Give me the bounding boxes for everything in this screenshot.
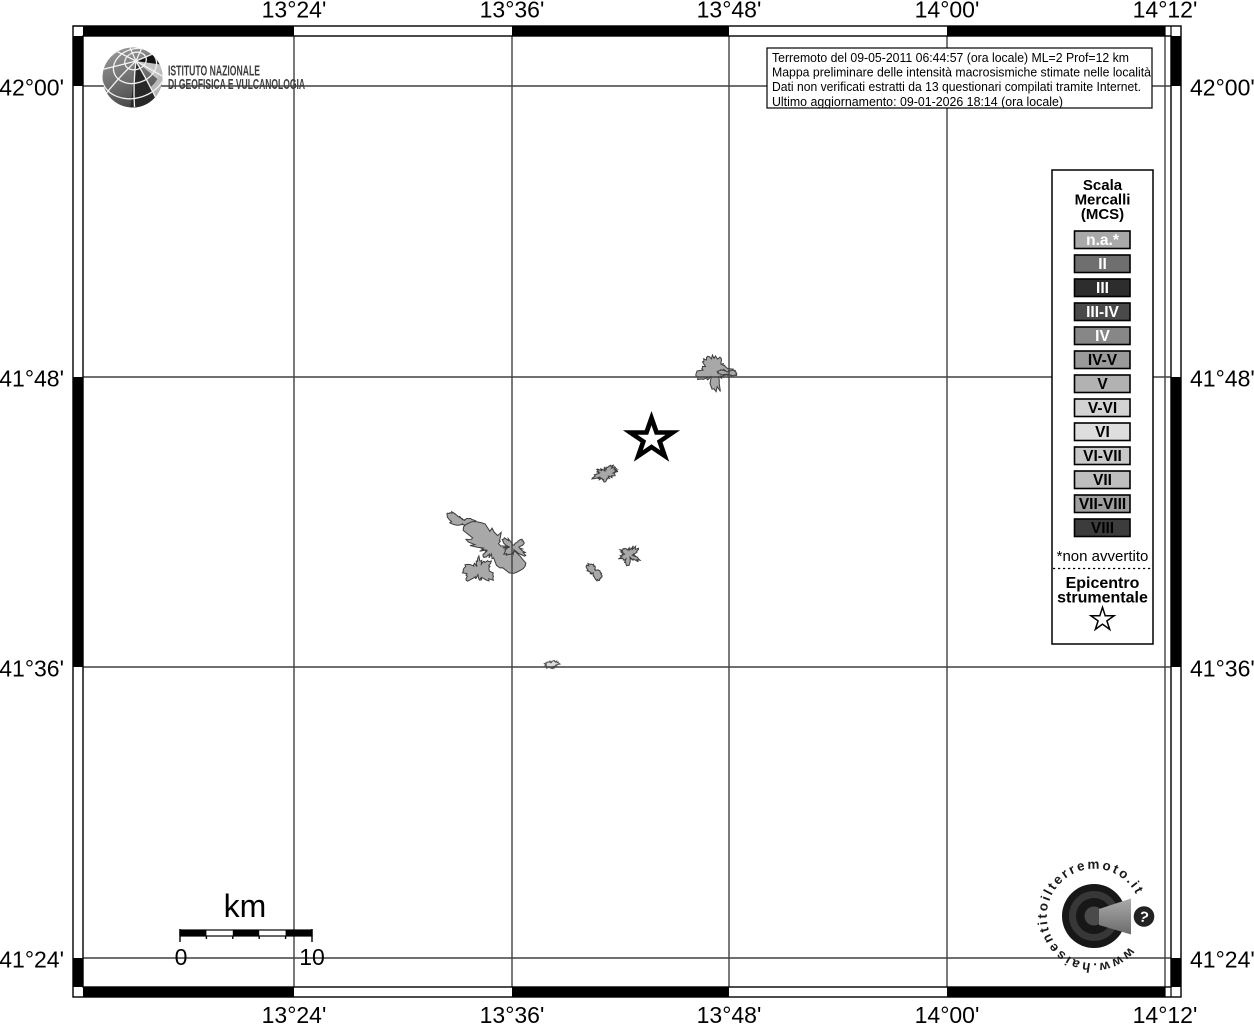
svg-text:IV-V: IV-V (1088, 352, 1118, 369)
svg-text:14°12': 14°12' (1133, 0, 1198, 23)
svg-text:0: 0 (175, 944, 188, 970)
svg-text:14°12': 14°12' (1133, 1002, 1198, 1024)
svg-text:strumentale: strumentale (1057, 590, 1148, 607)
svg-text:41°24': 41°24' (1190, 947, 1254, 973)
svg-text:km: km (224, 888, 267, 924)
svg-text:n.a.*: n.a.* (1086, 232, 1120, 249)
svg-text:41°36': 41°36' (0, 656, 64, 682)
svg-text:13°24': 13°24' (262, 0, 327, 23)
svg-text:10: 10 (299, 944, 325, 970)
svg-text:*non avvertito: *non avvertito (1057, 548, 1149, 565)
svg-text:V-VI: V-VI (1088, 400, 1117, 417)
svg-text:III: III (1096, 280, 1109, 297)
svg-text:13°36': 13°36' (480, 0, 545, 23)
svg-text:III-IV: III-IV (1086, 304, 1119, 321)
svg-text:13°48': 13°48' (697, 1002, 762, 1024)
svg-text:Mappa preliminare delle intens: Mappa preliminare delle intensità macros… (772, 65, 1152, 80)
svg-text:II: II (1098, 256, 1107, 273)
svg-text:41°48': 41°48' (1190, 366, 1254, 392)
svg-text:41°48': 41°48' (0, 366, 64, 392)
svg-text:14°00': 14°00' (915, 0, 980, 23)
svg-text:41°36': 41°36' (1190, 656, 1254, 682)
svg-text:VI: VI (1095, 424, 1110, 441)
svg-text:V: V (1097, 376, 1108, 393)
svg-text:13°24': 13°24' (262, 1002, 327, 1024)
svg-text:13°36': 13°36' (480, 1002, 545, 1024)
svg-text:42°00': 42°00' (1190, 75, 1254, 101)
svg-text:DI GEOFISICA E VULCANOLOGIA: DI GEOFISICA E VULCANOLOGIA (168, 77, 305, 93)
svg-text:IV: IV (1095, 328, 1110, 345)
svg-text:14°00': 14°00' (915, 1002, 980, 1024)
svg-text:Ultimo aggiornamento: 09-01-20: Ultimo aggiornamento: 09-01-2026 18:14 (… (772, 94, 1063, 109)
svg-text:(MCS): (MCS) (1081, 206, 1124, 223)
svg-text:Dati non verificati estratti d: Dati non verificati estratti da 13 quest… (772, 79, 1141, 94)
svg-text:Terremoto del 09-05-2011 06:44: Terremoto del 09-05-2011 06:44:57 (ora l… (772, 50, 1129, 65)
svg-text:VIII: VIII (1091, 520, 1114, 537)
svg-text:VII: VII (1093, 472, 1112, 489)
svg-text:VI-VII: VI-VII (1083, 448, 1122, 465)
svg-text:41°24': 41°24' (0, 947, 64, 973)
svg-text:VII-VIII: VII-VIII (1079, 496, 1126, 513)
svg-text:42°00': 42°00' (0, 75, 64, 101)
svg-text:13°48': 13°48' (697, 0, 762, 23)
